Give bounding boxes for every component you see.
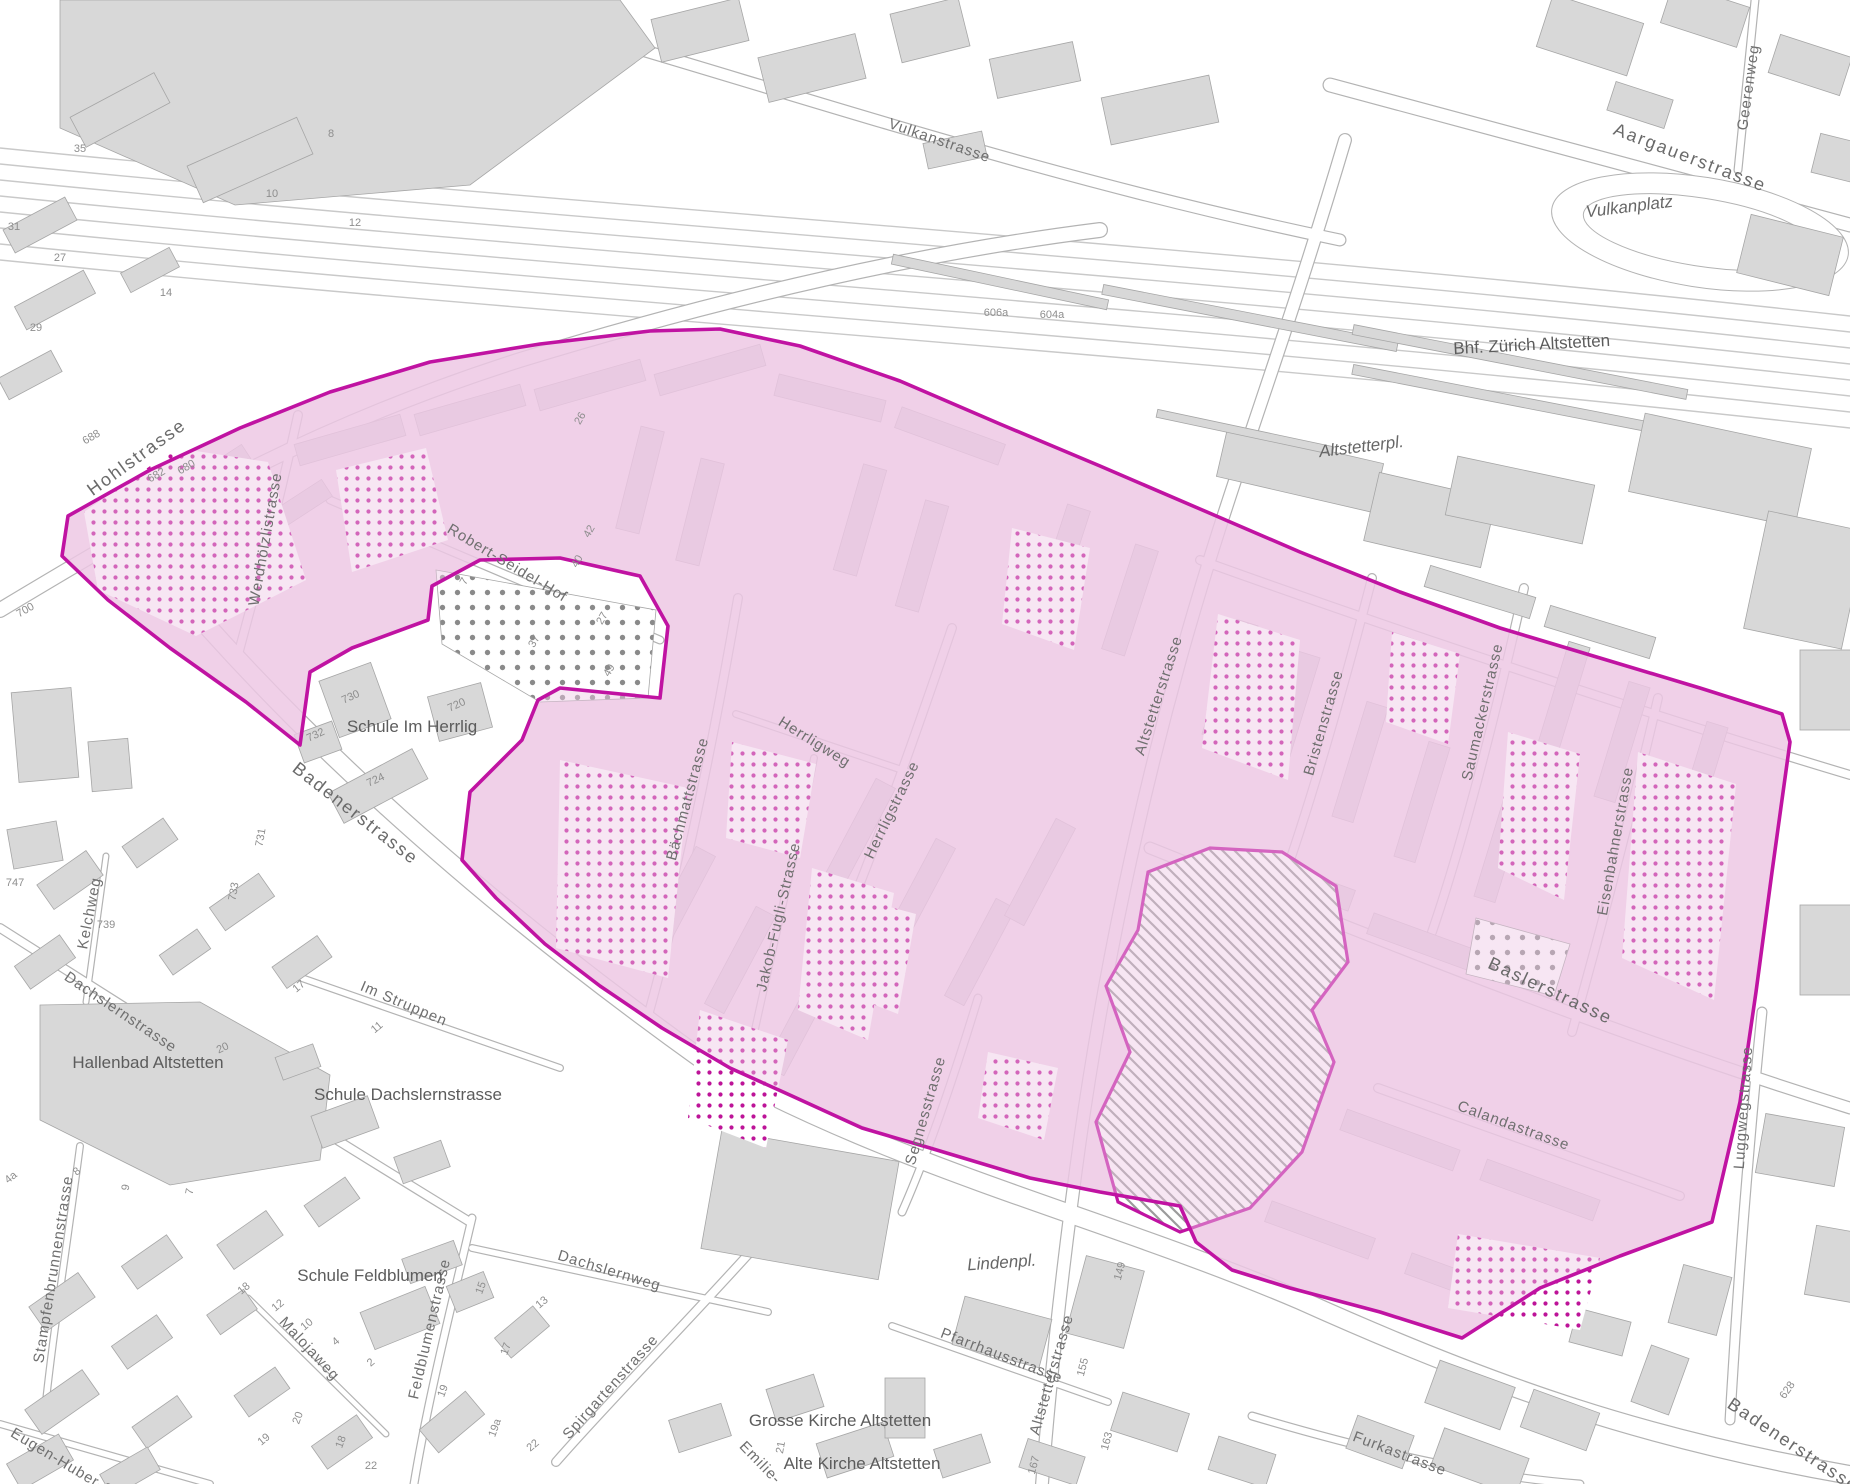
building-footprint (1631, 1345, 1689, 1415)
building-footprint (1066, 1256, 1145, 1349)
building-footprint (234, 1367, 290, 1417)
label-altstetterpl: Altstetterpl. (1317, 432, 1405, 461)
building-footprint (1804, 1225, 1850, 1304)
building-footprint (934, 1434, 991, 1478)
building-footprint (701, 1130, 899, 1279)
hallenbad-building (40, 1002, 330, 1185)
building-footprint (1102, 284, 1398, 351)
house-number-4: 4 (330, 1335, 342, 1348)
house-number-19a: 19a (486, 1416, 504, 1438)
building-footprint (1800, 905, 1850, 995)
building-footprint (989, 42, 1080, 99)
building-footprint (1431, 1428, 1529, 1484)
building-footprint (7, 821, 63, 869)
house-number-35: 35 (74, 143, 86, 155)
building-footprint (209, 873, 274, 930)
building-footprint (25, 1370, 100, 1435)
house-number-11: 11 (369, 1019, 385, 1036)
house-number-12: 12 (270, 1297, 287, 1314)
building-footprint (891, 254, 1108, 310)
building-footprint (1208, 1436, 1276, 1484)
house-number-22: 22 (525, 1437, 542, 1454)
house-number-27: 27 (54, 252, 66, 264)
building-footprint (0, 350, 62, 399)
house-number-7: 7 (184, 1187, 197, 1195)
house-number-606a: 606a (984, 307, 1009, 319)
label-bhf-zürich-altstetten: Bhf. Zürich Altstetten (1453, 331, 1611, 358)
house-number-155: 155 (1075, 1357, 1091, 1378)
building-footprint (11, 688, 79, 783)
label-lindenpl: Lindenpl. (967, 1251, 1037, 1275)
building-footprint (1800, 650, 1850, 730)
house-number-747: 747 (6, 877, 24, 889)
building-footprint (121, 1235, 182, 1289)
building-footprint (1768, 34, 1850, 95)
house-number-22: 22 (365, 1460, 377, 1472)
house-number-10: 10 (266, 188, 278, 200)
building-footprint (122, 818, 178, 868)
house-number-8: 8 (328, 128, 334, 140)
building-footprint (1755, 1114, 1844, 1187)
label-schule-dachslernstrasse: Schule Dachslernstrasse (314, 1085, 502, 1104)
building-footprint (1536, 0, 1643, 76)
label-alte-kirche-altstetten: Alte Kirche Altstetten (784, 1454, 941, 1473)
house-number-13: 13 (534, 1294, 551, 1311)
label-schule-im-herrlig: Schule Im Herrlig (347, 717, 477, 736)
building-footprint (111, 1315, 172, 1369)
building-footprint (217, 1211, 283, 1270)
building-footprint (1744, 511, 1850, 649)
building-footprint (132, 1396, 192, 1449)
building-footprint (304, 1177, 360, 1227)
building-footprint (1101, 75, 1219, 145)
building-footprint (1629, 413, 1812, 527)
label-schule-feldblumen: Schule Feldblumen (297, 1266, 443, 1285)
house-number-628: 628 (1777, 1379, 1797, 1401)
building-footprint (890, 0, 970, 63)
map-canvas[interactable]: VulkanstrasseAargauerstrasseGeerenwegHoh… (0, 0, 1850, 1484)
building-footprint (1668, 1265, 1732, 1336)
house-number-14: 14 (160, 287, 172, 299)
house-number-20: 20 (290, 1410, 305, 1426)
house-number-604a: 604a (1040, 309, 1065, 321)
house-number-19: 19 (435, 1383, 450, 1399)
label-hallenbad-altstetten: Hallenbad Altstetten (72, 1053, 223, 1072)
building-footprint (159, 929, 210, 975)
building-footprint (1111, 1392, 1190, 1452)
building-footprint (394, 1140, 451, 1183)
building-footprint (1520, 1389, 1599, 1451)
label-grosse-kirche-altstetten: Grosse Kirche Altstetten (749, 1411, 931, 1430)
building-footprint (121, 247, 180, 292)
building-footprint (1660, 0, 1749, 47)
house-number-739: 739 (97, 919, 115, 931)
house-number-21: 21 (774, 1440, 788, 1454)
house-number-2: 2 (365, 1356, 377, 1369)
building-footprint (1811, 133, 1850, 186)
house-number-731: 731 (254, 827, 269, 847)
house-number-31: 31 (8, 221, 20, 233)
label-geerenweg: Geerenweg (1734, 43, 1763, 131)
building-footprint (651, 0, 749, 62)
building-footprint (88, 738, 132, 791)
house-number-688: 688 (81, 428, 103, 448)
house-number-163: 163 (1099, 1431, 1115, 1452)
house-number-12: 12 (349, 217, 361, 229)
house-number-29: 29 (30, 322, 42, 334)
house-number-9: 9 (120, 1183, 133, 1191)
house-number-19: 19 (256, 1431, 273, 1448)
building-footprint (14, 270, 95, 330)
house-number-4a: 4a (3, 1169, 21, 1187)
label-spirgartenstrasse: Spirgartenstrasse (559, 1331, 662, 1442)
building-footprint (669, 1403, 732, 1452)
building-footprint (758, 34, 866, 103)
